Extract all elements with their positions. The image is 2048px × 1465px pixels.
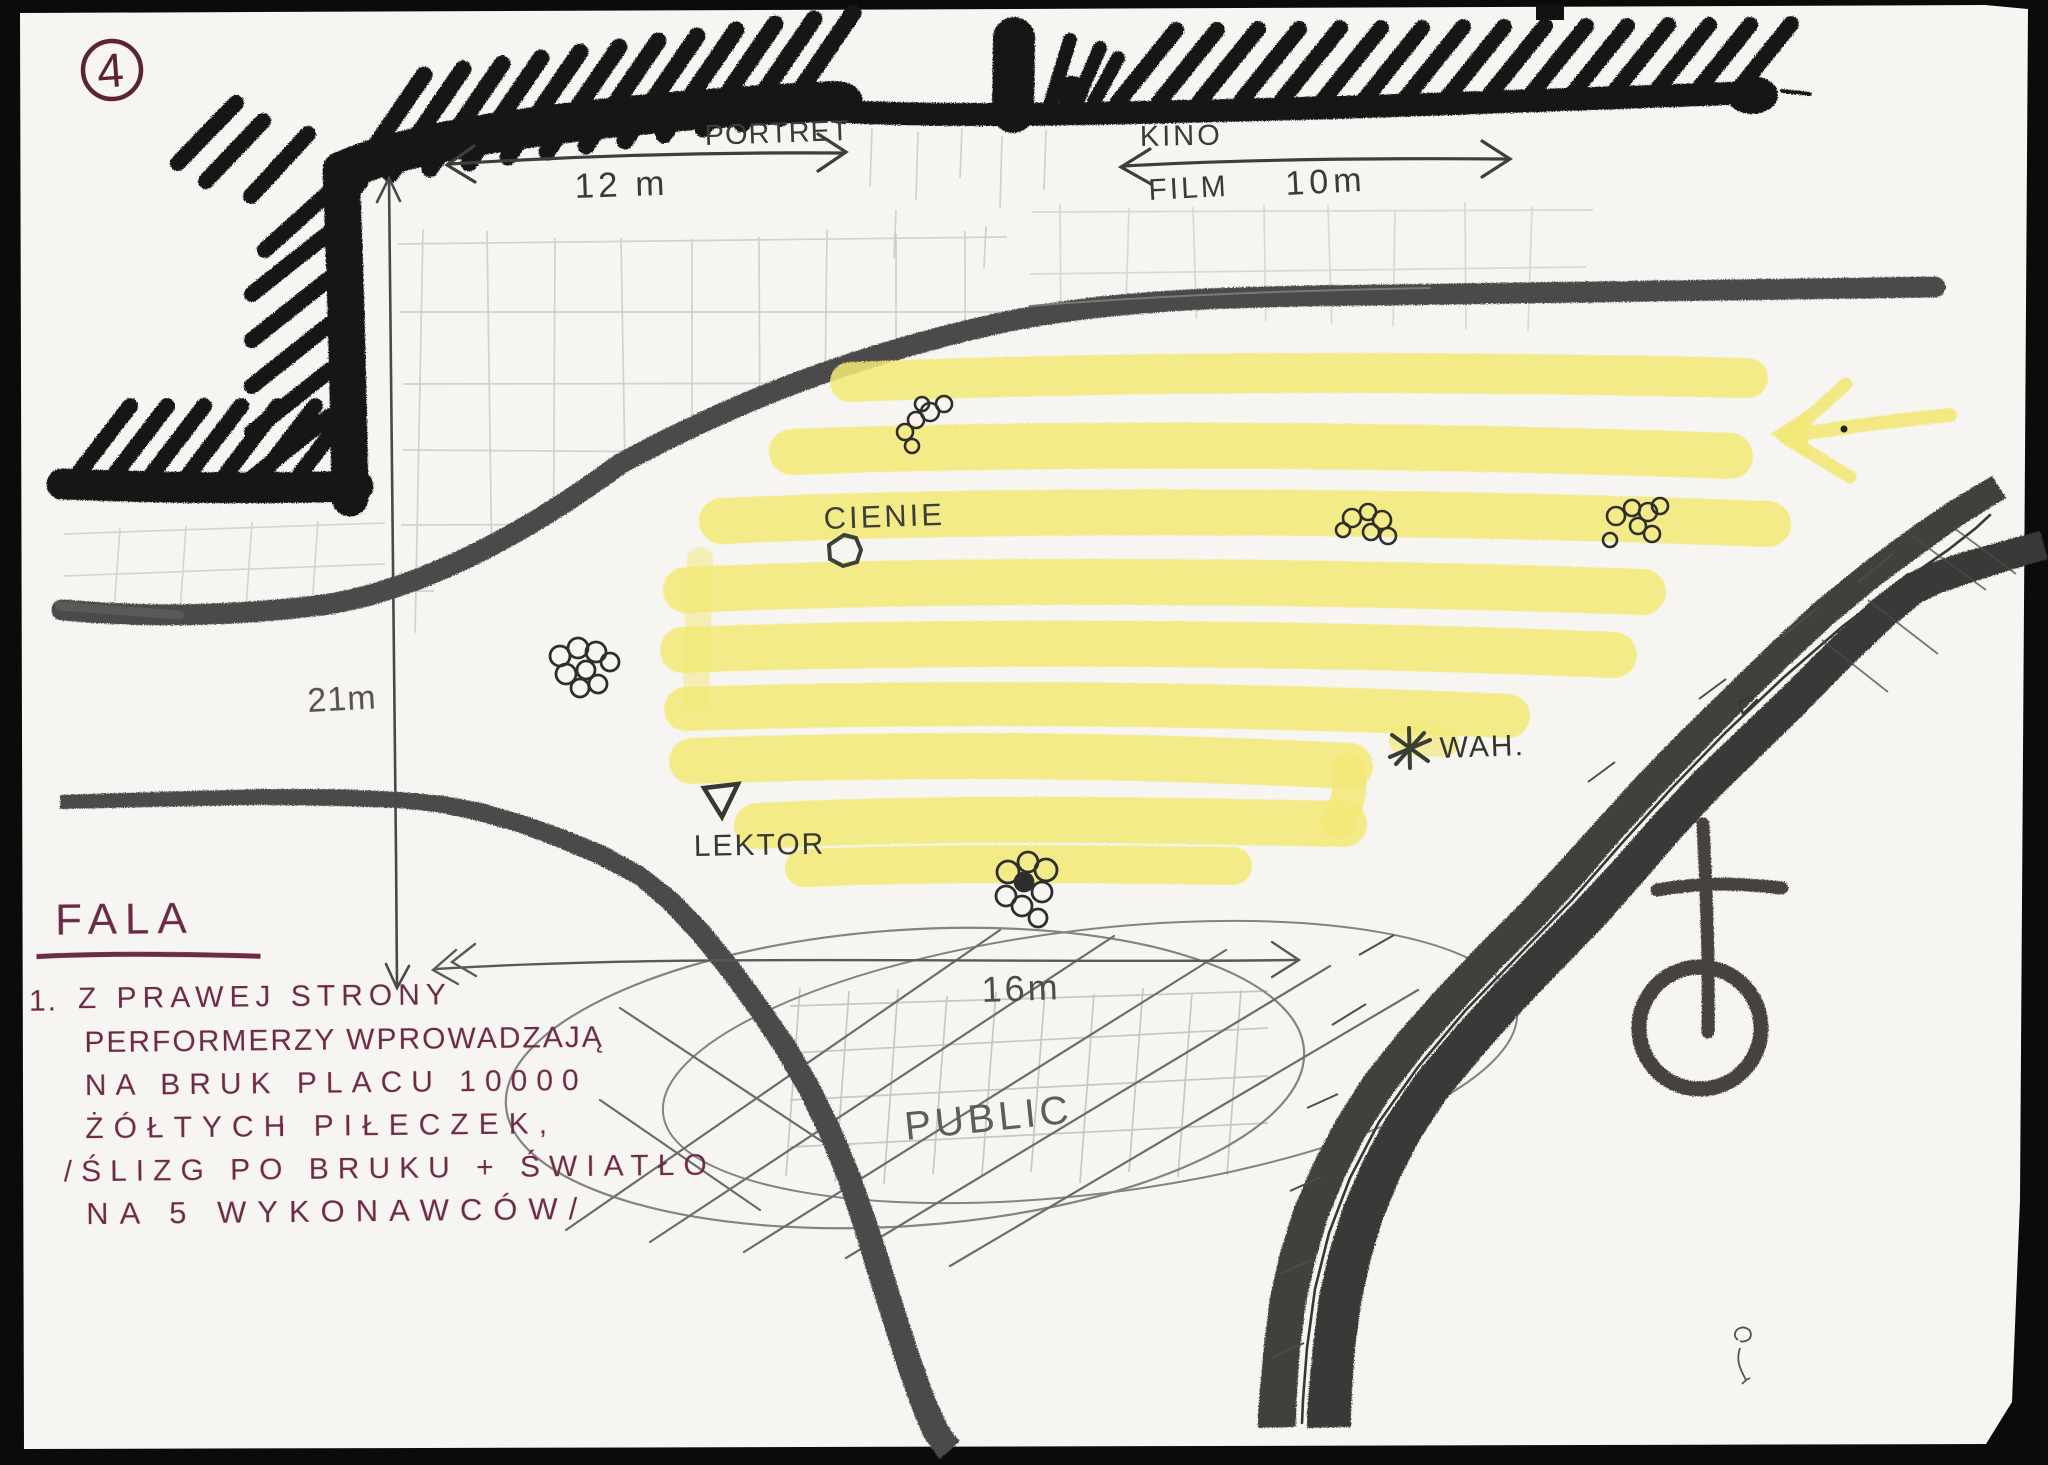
- svg-text:WAH.: WAH.: [1439, 729, 1525, 765]
- svg-text:12 m: 12 m: [574, 164, 669, 206]
- svg-text:KINO: KINO: [1140, 120, 1223, 153]
- svg-text:/ŚLIZG PO BRUKU + ŚWIATŁO: /ŚLIZG PO BRUKU + ŚWIATŁO: [64, 1148, 716, 1189]
- svg-text:4: 4: [95, 44, 125, 99]
- svg-text:NA BRUK PLACU 10000: NA BRUK PLACU 10000: [85, 1064, 588, 1102]
- svg-text:NA 5 WYKONAWCÓW/: NA 5 WYKONAWCÓW/: [86, 1191, 588, 1231]
- svg-text:21m: 21m: [306, 678, 377, 720]
- svg-text:10m: 10m: [1284, 161, 1367, 203]
- svg-text:1.: 1.: [29, 984, 58, 1017]
- svg-text:LEKTOR: LEKTOR: [694, 828, 826, 863]
- svg-text:FALA: FALA: [55, 894, 195, 944]
- svg-text:16m: 16m: [981, 966, 1061, 1010]
- svg-text:FILM: FILM: [1148, 170, 1230, 207]
- svg-text:CIENIE: CIENIE: [823, 497, 946, 536]
- svg-text:ŻÓŁTYCH PIŁECZEK,: ŻÓŁTYCH PIŁECZEK,: [85, 1107, 557, 1145]
- svg-text:Z PRAWEJ STRONY: Z PRAWEJ STRONY: [78, 978, 452, 1015]
- svg-text:PORTRET: PORTRET: [704, 115, 850, 152]
- svg-text:PERFORMERZY WPROWADZAJĄ: PERFORMERZY WPROWADZAJĄ: [84, 1021, 604, 1059]
